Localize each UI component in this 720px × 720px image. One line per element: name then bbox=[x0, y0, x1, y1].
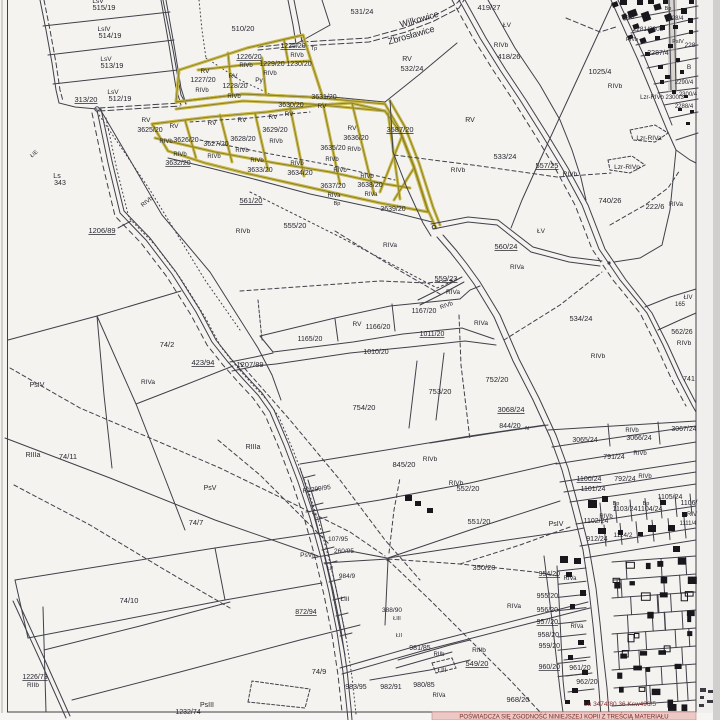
svg-text:RIVb: RIVb bbox=[638, 474, 652, 480]
svg-text:RIVb: RIVb bbox=[608, 83, 623, 90]
svg-text:3636/20: 3636/20 bbox=[343, 135, 368, 142]
svg-text:844/20: 844/20 bbox=[499, 423, 521, 430]
svg-text:984/9: 984/9 bbox=[339, 573, 356, 580]
svg-text:RV: RV bbox=[402, 56, 412, 63]
svg-text:1111/4: 1111/4 bbox=[679, 521, 697, 527]
svg-text:2288/4: 2288/4 bbox=[675, 104, 694, 110]
svg-text:1100/24: 1100/24 bbox=[577, 476, 602, 483]
svg-text:3625/20: 3625/20 bbox=[137, 127, 162, 134]
svg-text:RIVb: RIVb bbox=[563, 171, 578, 178]
svg-text:165: 165 bbox=[675, 302, 686, 308]
svg-text:752/20: 752/20 bbox=[486, 375, 509, 384]
svg-text:957/20: 957/20 bbox=[537, 619, 559, 626]
svg-text:RIVb: RIVb bbox=[325, 157, 339, 163]
svg-text:RIVa: RIVa bbox=[365, 192, 379, 198]
svg-text:RIVb: RIVb bbox=[236, 228, 251, 235]
svg-text:510/20: 510/20 bbox=[232, 24, 255, 33]
svg-text:RIVb: RIVb bbox=[173, 152, 187, 158]
svg-text:962/20: 962/20 bbox=[576, 679, 598, 686]
svg-text:Ls: Ls bbox=[53, 173, 61, 180]
svg-text:3634/20: 3634/20 bbox=[287, 170, 312, 177]
svg-text:RIVb: RIVb bbox=[494, 42, 509, 49]
svg-text:555/20: 555/20 bbox=[284, 221, 307, 230]
svg-text:982/91: 982/91 bbox=[380, 684, 402, 691]
svg-text:1225/20: 1225/20 bbox=[280, 43, 305, 50]
svg-text:531/24: 531/24 bbox=[351, 7, 374, 16]
svg-text:RV: RV bbox=[229, 73, 239, 80]
svg-text:980/85: 980/85 bbox=[413, 682, 435, 689]
svg-text:228/4: 228/4 bbox=[668, 16, 684, 22]
svg-text:RV: RV bbox=[170, 123, 180, 130]
svg-text:ŁIII: ŁIII bbox=[340, 596, 349, 603]
svg-text:872/94: 872/94 bbox=[295, 609, 317, 616]
svg-text:423/94: 423/94 bbox=[192, 358, 215, 367]
svg-text:74/7: 74/7 bbox=[189, 518, 204, 527]
svg-text:RV: RV bbox=[318, 103, 328, 110]
svg-text:1229/20: 1229/20 bbox=[259, 61, 284, 68]
svg-text:958/20: 958/20 bbox=[538, 632, 560, 639]
svg-text:LsV: LsV bbox=[100, 56, 112, 63]
svg-text:3065/24: 3065/24 bbox=[572, 437, 597, 444]
svg-text:3637/20: 3637/20 bbox=[320, 183, 345, 190]
svg-text:RIVb: RIVb bbox=[423, 456, 438, 463]
svg-text:419/27: 419/27 bbox=[478, 3, 501, 12]
svg-text:959/20: 959/20 bbox=[539, 643, 561, 650]
svg-text:RIVb: RIVb bbox=[269, 139, 283, 145]
svg-text:791/24: 791/24 bbox=[603, 454, 625, 461]
svg-text:1025/4: 1025/4 bbox=[589, 67, 612, 76]
svg-text:228: 228 bbox=[685, 42, 696, 49]
svg-text:RIVb: RIVb bbox=[159, 139, 173, 145]
svg-text:RIIIa: RIIIa bbox=[246, 444, 261, 451]
svg-text:ŁIV: ŁIV bbox=[683, 295, 692, 301]
svg-text:954/20: 954/20 bbox=[539, 571, 561, 578]
svg-text:RIIb: RIIb bbox=[27, 682, 39, 689]
svg-text:RIVb: RIVb bbox=[195, 88, 209, 94]
svg-text:Lzr-RIVp: Lzr-RIVp bbox=[614, 164, 640, 171]
svg-text:ŁII: ŁII bbox=[327, 566, 334, 572]
svg-text:LsV: LsV bbox=[107, 89, 119, 96]
svg-text:RIVb: RIVb bbox=[263, 71, 277, 77]
svg-text:2290/4: 2290/4 bbox=[675, 80, 694, 86]
svg-text:3638/20: 3638/20 bbox=[357, 182, 382, 189]
svg-text:533/24: 533/24 bbox=[494, 152, 517, 161]
svg-text:B: B bbox=[687, 64, 691, 71]
svg-text:1106/: 1106/ bbox=[681, 500, 698, 507]
svg-text:RV: RV bbox=[353, 321, 363, 328]
svg-text:3632/20: 3632/20 bbox=[165, 160, 190, 167]
svg-text:POŚWIADCZA SIĘ ZGODNOŚĆ NINIEJ: POŚWIADCZA SIĘ ZGODNOŚĆ NINIEJSZEJ KOPII… bbox=[459, 713, 668, 720]
svg-text:3630/20: 3630/20 bbox=[278, 102, 303, 109]
svg-text:RIVb: RIVb bbox=[633, 451, 647, 457]
svg-text:RIVb: RIVb bbox=[290, 53, 304, 59]
svg-text:753/20: 753/20 bbox=[429, 387, 452, 396]
svg-text:3635/20: 3635/20 bbox=[320, 145, 345, 152]
svg-text:1226/73: 1226/73 bbox=[22, 674, 47, 681]
svg-text:388/90: 388/90 bbox=[382, 607, 402, 614]
svg-text:RIVb: RIVb bbox=[451, 167, 466, 174]
svg-text:RV: RV bbox=[201, 68, 211, 75]
svg-text:RIVa: RIVa bbox=[507, 603, 521, 610]
svg-text:Lu 3474/80 36 Ksw496/5: Lu 3474/80 36 Ksw496/5 bbox=[584, 701, 656, 708]
svg-text:1114/2: 1114/2 bbox=[614, 532, 633, 539]
svg-text:RIVa: RIVa bbox=[433, 693, 447, 699]
svg-text:968/20: 968/20 bbox=[507, 695, 530, 704]
svg-text:N: N bbox=[525, 426, 529, 432]
svg-text:1207/89: 1207/89 bbox=[236, 360, 263, 369]
svg-text:983/95: 983/95 bbox=[345, 684, 367, 691]
svg-text:912/24: 912/24 bbox=[586, 536, 608, 543]
svg-text:1105/24: 1105/24 bbox=[658, 494, 683, 501]
svg-text:3633/20: 3633/20 bbox=[247, 167, 272, 174]
svg-text:PsIII: PsIII bbox=[200, 702, 214, 709]
svg-text:3067/24: 3067/24 bbox=[671, 426, 696, 433]
svg-text:1230/20: 1230/20 bbox=[286, 61, 311, 68]
svg-text:956/20: 956/20 bbox=[537, 607, 559, 614]
svg-text:74/9: 74/9 bbox=[312, 667, 327, 676]
svg-text:2281/2302: 2281/2302 bbox=[633, 26, 664, 33]
svg-text:Py: Py bbox=[255, 77, 263, 84]
svg-text:2287/4: 2287/4 bbox=[647, 50, 669, 57]
svg-text:LsV: LsV bbox=[92, 0, 104, 5]
svg-text:560/24: 560/24 bbox=[495, 242, 518, 251]
svg-text:RIIIa: RIIIa bbox=[26, 452, 41, 459]
svg-text:ŁV: ŁV bbox=[503, 22, 512, 29]
svg-text:RIVb: RIVb bbox=[622, 15, 634, 21]
svg-text:350/20: 350/20 bbox=[473, 563, 496, 572]
svg-text:PsIV: PsIV bbox=[549, 521, 564, 528]
svg-text:557/25: 557/25 bbox=[536, 161, 559, 170]
svg-text:RIVb: RIVb bbox=[599, 514, 613, 520]
svg-text:1165/20: 1165/20 bbox=[298, 336, 323, 343]
svg-text:RV: RV bbox=[142, 117, 152, 124]
svg-text:Tp: Tp bbox=[311, 46, 317, 52]
svg-text:RIV: RIV bbox=[687, 512, 697, 518]
svg-text:RIVa: RIVa bbox=[383, 242, 397, 249]
svg-text:PsV: PsV bbox=[204, 485, 217, 492]
svg-text:RIVa: RIVa bbox=[141, 379, 155, 386]
svg-text:ŁII: ŁII bbox=[396, 633, 403, 639]
svg-text:313/20: 313/20 bbox=[75, 95, 98, 104]
svg-text:RIVa: RIVa bbox=[571, 624, 585, 630]
svg-text:1011/20: 1011/20 bbox=[420, 331, 445, 338]
svg-text:RIVb: RIVb bbox=[290, 161, 304, 167]
svg-text:LsIV: LsIV bbox=[97, 26, 111, 33]
svg-text:Bp: Bp bbox=[334, 201, 341, 207]
svg-text:955/20: 955/20 bbox=[537, 593, 559, 600]
svg-text:3629/20: 3629/20 bbox=[262, 127, 287, 134]
svg-text:1167/20: 1167/20 bbox=[412, 308, 437, 315]
svg-text:1166/20: 1166/20 bbox=[366, 324, 391, 331]
svg-text:ŁV: ŁV bbox=[537, 228, 546, 235]
svg-text:74/2: 74/2 bbox=[160, 340, 175, 349]
svg-text:3626/20: 3626/20 bbox=[173, 137, 198, 144]
svg-text:RIVb: RIVb bbox=[227, 94, 241, 100]
svg-text:1228/20: 1228/20 bbox=[222, 83, 247, 90]
svg-text:1010/20: 1010/20 bbox=[363, 349, 388, 356]
svg-text:1101/24: 1101/24 bbox=[581, 486, 606, 493]
svg-text:960/20: 960/20 bbox=[539, 664, 561, 671]
svg-text:1227/20: 1227/20 bbox=[190, 77, 215, 84]
svg-text:RIVb: RIVb bbox=[239, 63, 253, 69]
svg-text:RIVb: RIVb bbox=[626, 37, 638, 43]
svg-text:Lzr-RIVb 2300/3: Lzr-RIVb 2300/3 bbox=[640, 95, 684, 101]
svg-text:RIVb: RIVb bbox=[347, 147, 361, 153]
svg-text:RV: RV bbox=[465, 117, 475, 124]
svg-text:Lzr-RIVa: Lzr-RIVa bbox=[636, 135, 662, 142]
svg-text:845/20: 845/20 bbox=[393, 460, 416, 469]
svg-text:RIVb: RIVb bbox=[591, 353, 606, 360]
svg-text:3068/24: 3068/24 bbox=[497, 405, 524, 414]
svg-text:RIVb: RIVb bbox=[250, 158, 264, 164]
svg-text:RIVa: RIVa bbox=[510, 264, 524, 271]
svg-text:RIIIb: RIIIb bbox=[472, 647, 486, 654]
svg-text:3628/20: 3628/20 bbox=[230, 136, 255, 143]
svg-text:RIVb: RIVb bbox=[207, 154, 221, 160]
svg-text:754/20: 754/20 bbox=[353, 403, 376, 412]
svg-text:RIVb: RIVb bbox=[333, 168, 347, 174]
svg-text:Bp: Bp bbox=[665, 6, 672, 12]
svg-text:1206/89: 1206/89 bbox=[88, 226, 115, 235]
svg-text:RIVb: RIVb bbox=[677, 340, 692, 347]
svg-text:1226/20: 1226/20 bbox=[236, 54, 261, 61]
svg-text:792/24: 792/24 bbox=[614, 476, 636, 483]
svg-text:74/10: 74/10 bbox=[120, 596, 139, 605]
svg-text:741: 741 bbox=[683, 376, 695, 383]
svg-text:562/26: 562/26 bbox=[671, 329, 693, 336]
svg-text:RV: RV bbox=[348, 125, 358, 132]
svg-text:3066/24: 3066/24 bbox=[626, 435, 651, 442]
svg-text:PsIV: PsIV bbox=[672, 39, 684, 45]
svg-text:534/24: 534/24 bbox=[570, 314, 593, 323]
svg-text:1104/24: 1104/24 bbox=[638, 506, 663, 513]
svg-text:RIVa: RIVa bbox=[474, 320, 488, 327]
svg-text:1232/74: 1232/74 bbox=[175, 709, 200, 716]
svg-text:532/24: 532/24 bbox=[401, 64, 424, 73]
svg-text:561/20: 561/20 bbox=[240, 196, 263, 205]
svg-text:343: 343 bbox=[54, 180, 66, 187]
svg-text:107/95: 107/95 bbox=[328, 536, 348, 543]
svg-text:3631/20: 3631/20 bbox=[311, 94, 336, 101]
svg-text:RIVb: RIVb bbox=[449, 480, 464, 487]
svg-text:RIVa: RIVa bbox=[446, 289, 460, 296]
svg-text:222/6: 222/6 bbox=[646, 202, 665, 211]
svg-text:1103/24: 1103/24 bbox=[613, 506, 638, 513]
svg-text:ŁIII: ŁIII bbox=[393, 616, 401, 622]
svg-text:418/26: 418/26 bbox=[498, 52, 521, 61]
svg-text:740/26: 740/26 bbox=[599, 196, 622, 205]
svg-text:RIVb: RIVb bbox=[625, 428, 639, 434]
svg-text:3587/20: 3587/20 bbox=[386, 125, 413, 134]
